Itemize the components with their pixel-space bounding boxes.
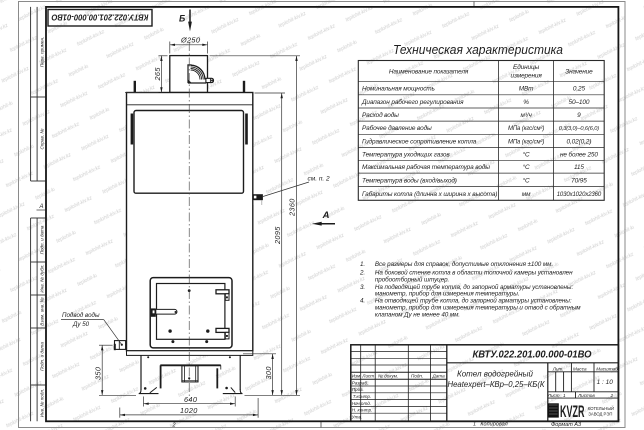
svg-text:Лист: Лист [361,374,374,379]
svg-text:КОТЕЛЬНЫЙ: КОТЕЛЬНЫЙ [588,406,614,411]
svg-text:Номинальная мощность: Номинальная мощность [362,86,436,93]
svg-text:измерения: измерения [511,73,543,80]
svg-text:Подп. и дата: Подп. и дата [39,342,44,371]
svg-text:Температура уходящих газов: Температура уходящих газов [362,150,450,158]
svg-text:2.: 2. [359,270,365,277]
svg-text:Все размеры для справок, допус: Все размеры для справок, допустимые откл… [375,260,553,268]
svg-text:ЗАВОД РЭП: ЗАВОД РЭП [588,411,612,416]
svg-text:Пров.: Пров. [352,387,364,392]
svg-text:Листов: Листов [577,393,595,398]
svg-text:Подп. и дата: Подп. и дата [39,225,44,254]
svg-text:Изм: Изм [352,374,361,379]
svg-text:1 : 10: 1 : 10 [597,379,614,386]
svg-text:КВТУ.022.201.00.000-01ВО: КВТУ.022.201.00.000-01ВО [473,349,592,360]
svg-text:Утв.: Утв. [352,414,362,419]
svg-text:Габариты котла (длинна х ширин: Габариты котла (длинна х ширина х высота… [362,190,497,198]
svg-text:640: 640 [184,395,197,404]
svg-text:115: 115 [574,164,584,171]
svg-text:Диапазон рабочего регулировани: Диапазон рабочего регулирования [361,98,464,106]
svg-text:Лит.: Лит. [552,366,564,371]
svg-text:А: А [322,210,330,221]
svg-text:Расход воды: Расход воды [362,111,399,119]
svg-text:МПа (кгс/см²): МПа (кгс/см²) [508,126,544,132]
svg-text:Масса: Масса [573,366,587,371]
svg-text:Котел водогрейный: Котел водогрейный [457,370,534,379]
svg-text:2095: 2095 [273,226,282,245]
svg-text:4.: 4. [360,298,365,305]
svg-text:Инв. № дубл.: Инв. № дубл. [39,264,44,292]
svg-text:МПа (кгс/см²): МПа (кгс/см²) [508,139,544,145]
svg-text:300: 300 [264,366,273,379]
svg-text:Ø250: Ø250 [180,36,200,45]
svg-text:1: 1 [563,393,566,398]
svg-text:№ докум.: № докум. [378,374,398,379]
svg-text:1.: 1. [360,261,365,268]
svg-text:2360: 2360 [288,198,297,217]
svg-text:%: % [523,99,529,106]
svg-text:Формат А3: Формат А3 [551,422,582,428]
svg-text:350: 350 [94,367,103,380]
svg-text:мм: мм [522,191,531,198]
svg-text:Справ. №: Справ. № [39,129,44,150]
svg-text:Взам. инв. №: Взам. инв. № [39,297,44,325]
svg-text:9: 9 [577,112,581,119]
svg-text:°С: °С [523,176,530,184]
svg-text:3.: 3. [360,284,365,291]
svg-text:Техническая характеристика: Техническая характеристика [393,42,563,57]
svg-text:70/95: 70/95 [571,177,587,184]
svg-text:2: 2 [610,393,614,398]
svg-text:Копировал: Копировал [480,421,507,427]
svg-text:°С: °С [523,150,530,158]
svg-text:1030х1020х2360: 1030х1020х2360 [557,192,602,198]
svg-text:пробоотборный штуцер.: пробоотборный штуцер. [375,275,449,283]
svg-text:°С: °С [523,163,530,171]
svg-text:Подп.: Подп. [411,374,423,379]
svg-text:Лист: Лист [547,393,560,398]
svg-text:2: 2 [172,423,176,429]
svg-text:Н. контр.: Н. контр. [352,408,373,413]
svg-text:Подвод воды: Подвод воды [62,312,100,319]
svg-text:м³/ч: м³/ч [520,112,532,119]
svg-text:Гидравлическое сопротивление к: Гидравлическое сопротивление котла [362,137,477,145]
svg-text:0,3(3,0)–0,6(6,0): 0,3(3,0)–0,6(6,0) [559,126,600,132]
svg-text:Б: Б [179,13,185,23]
svg-text:Масштаб: Масштаб [596,366,618,371]
svg-text:манометр, прибор для измерения: манометр, прибор для измерения температу… [375,304,581,312]
svg-text:не более 250: не более 250 [560,150,598,158]
svg-text:0,25: 0,25 [573,86,586,93]
svg-text:Разраб.: Разраб. [352,380,369,385]
svg-text:На отводящей трубе котла, до з: На отводящей трубе котла, до запорной ар… [375,297,572,305]
svg-text:Максимальная рабочая температу: Максимальная рабочая температура воды [362,163,490,171]
svg-text:Нач.отд.: Нач.отд. [352,401,371,406]
svg-text:Единицы: Единицы [513,63,540,71]
svg-text:клапаном Ду не менее 40 мм.: клапаном Ду не менее 40 мм. [375,311,460,318]
svg-text:KVZR: KVZR [560,403,585,421]
svg-text:Перв. примен.: Перв. примен. [39,37,44,68]
svg-text:Температура воды (вход/выход): Температура воды (вход/выход) [362,176,457,184]
svg-text:1: 1 [473,421,476,427]
svg-text:КВТУ.022.201.00.000-01ВО: КВТУ.022.201.00.000-01ВО [51,13,148,23]
svg-text:50–100: 50–100 [569,99,590,106]
svg-text:Ду 50: Ду 50 [72,321,90,328]
svg-text:Инв. № подл.: Инв. № подл. [39,389,44,418]
svg-text:см. п. 2: см. п. 2 [308,176,331,183]
svg-text:Дата: Дата [432,374,446,379]
svg-text:265: 265 [153,67,162,82]
svg-text:Рабочее давление воды: Рабочее давление воды [362,124,432,132]
svg-text:Наименование показателя: Наименование показателя [389,69,469,76]
svg-text:Heatexpert–КВр–0,25–КБ(К: Heatexpert–КВр–0,25–КБ(К [448,380,546,389]
svg-text:Значение: Значение [565,69,593,76]
svg-text:1020: 1020 [180,406,198,415]
svg-text:0,02(0,2): 0,02(0,2) [567,138,592,145]
svg-text:манометр, прибор для измерения: манометр, прибор для измерения температу… [375,289,520,297]
svg-text:Т.контр.: Т.контр. [353,394,372,399]
svg-text:МВт: МВт [519,86,534,93]
svg-text:А: А [39,204,44,210]
